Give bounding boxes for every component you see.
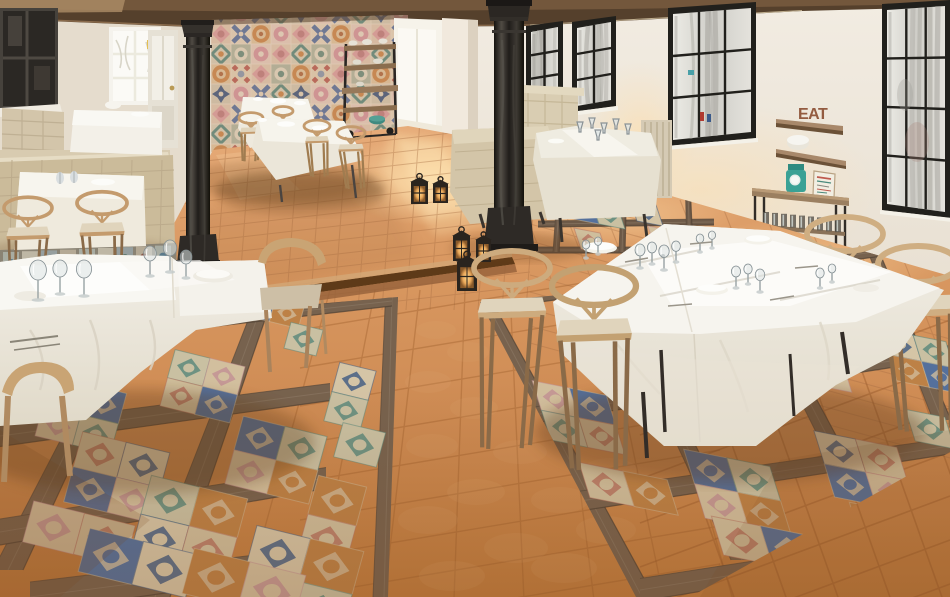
svg-text:EAT: EAT (798, 106, 828, 123)
